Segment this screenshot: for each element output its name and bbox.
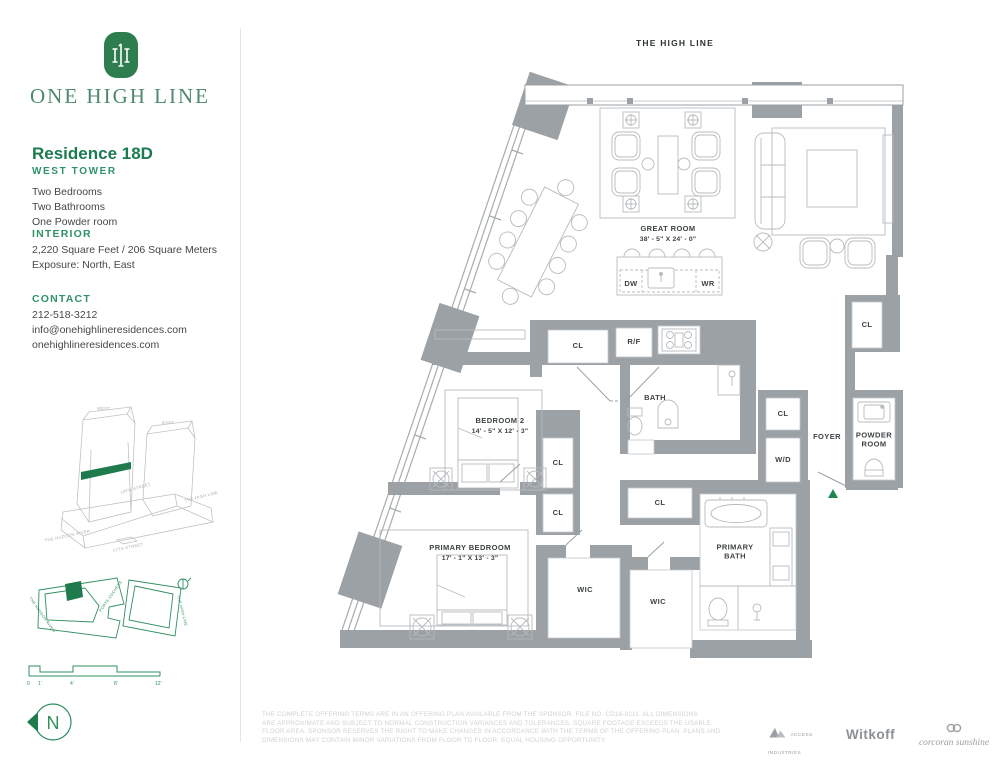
contact-email[interactable]: info@onehighlineresidences.com — [32, 323, 187, 338]
label-cl-foyer: CL — [778, 410, 789, 419]
label-primary-bath: PRIMARY BATH — [709, 544, 761, 561]
label-primary-bedroom: PRIMARY BEDROOM — [429, 544, 510, 553]
legal-disclaimer: THE COMPLETE OFFERING TERMS ARE IN AN OF… — [262, 711, 742, 745]
north-arrow: N — [26, 697, 76, 747]
residence-title: Residence 18D — [32, 144, 153, 164]
great-room-seating — [600, 108, 735, 218]
label-rf: R/F — [627, 338, 640, 347]
label-powder-room: POWDER ROOM — [850, 432, 898, 449]
label-wd: W/D — [775, 456, 791, 465]
label-cl-nook: CL — [862, 321, 873, 330]
feature-bedrooms: Two Bedrooms — [32, 185, 117, 200]
interior-heading: INTERIOR — [32, 228, 92, 240]
witkoff-logo: Witkoff — [846, 727, 908, 742]
bedroom2-furniture — [430, 390, 546, 490]
label-great-room: GREAT ROOM — [640, 225, 695, 234]
contact-heading: CONTACT — [32, 293, 91, 305]
label-wic-2: WIC — [650, 598, 666, 607]
east-tower-outline — [143, 428, 195, 516]
access-mountain-icon — [768, 725, 786, 739]
interior-details: 2,220 Square Feet / 206 Square Meters Ex… — [32, 243, 217, 273]
label-west: WEST — [97, 406, 110, 411]
scale-tick-0: 0 — [27, 681, 30, 687]
great-room-sofa-area — [754, 128, 893, 268]
site-map: THE HUDSON RIVER PORTE-COCHÈRE THE HIGH … — [25, 572, 200, 657]
brand-logo-badge — [104, 32, 138, 78]
scale-tick-8: 8' — [114, 681, 118, 687]
label-dw: DW — [624, 280, 637, 289]
interior-sqft: 2,220 Square Feet / 206 Square Meters — [32, 243, 217, 258]
label-bedroom2-dims: 14' - 5" X 12' - 3" — [472, 428, 529, 437]
label-18th-street: 18TH STREET — [120, 482, 152, 495]
north-arrow-pointer — [27, 712, 38, 732]
floor-plan — [280, 30, 990, 710]
residence-floor-band — [81, 462, 131, 480]
contact-phone[interactable]: 212-518-3212 — [32, 308, 187, 323]
north-label: N — [47, 713, 60, 733]
contact-website[interactable]: onehighlineresidences.com — [32, 338, 187, 353]
entry-triangle-marker — [828, 489, 838, 498]
scale-tick-12: 12' — [155, 681, 162, 687]
scale-tick-1: 1' — [38, 681, 42, 687]
label-bedroom2: BEDROOM 2 — [475, 417, 524, 426]
label-cl-hall-b: CL — [553, 509, 564, 518]
disclaimer-line-1: THE COMPLETE OFFERING TERMS ARE IN AN OF… — [262, 711, 742, 720]
building-axon-diagram: WEST EAST 18TH STREET THE HIGH LINE THE … — [25, 390, 220, 568]
residence-tower: WEST TOWER — [32, 166, 117, 177]
label-wic-1: WIC — [577, 586, 593, 595]
site-label-porte-cochere: PORTE-COCHÈRE — [98, 579, 124, 612]
scale-bar: 0 1' 4' 8' 12' — [25, 655, 170, 689]
disclaimer-line-4: DIMENSIONS MAY CONTAIN MINOR VARIATIONS … — [262, 737, 742, 746]
label-high-line: THE HIGH LINE — [184, 490, 219, 503]
label-cl-kitchen: CL — [573, 342, 584, 351]
unit-location-marker — [65, 581, 83, 601]
label-cl-primary: CL — [655, 499, 666, 508]
label-wr: WR — [701, 280, 714, 289]
site-label-hudson: THE HUDSON RIVER — [28, 596, 56, 633]
sidebar-divider — [240, 28, 241, 742]
label-foyer: FOYER — [813, 433, 841, 442]
label-east: EAST — [162, 420, 174, 425]
scale-tick-4: 4' — [70, 681, 74, 687]
north-window-wall — [525, 85, 903, 105]
brand-name: ONE HIGH LINE — [18, 84, 222, 109]
brochure-page: ONE HIGH LINE Residence 18D WEST TOWER T… — [0, 0, 1000, 771]
label-great-room-dims: 38' - 5" X 24' - 0" — [640, 236, 697, 245]
corcoran-rings-icon — [944, 723, 964, 733]
label-primary-bedroom-dims: 17' - 1" X 13' - 3" — [442, 555, 499, 564]
dining-table — [475, 164, 602, 320]
corcoran-sunshine-logo: corcoran sunshine — [918, 720, 990, 748]
interior-exposure: Exposure: North, East — [32, 258, 217, 273]
access-industries-logo: ACCESS INDUSTRIES — [768, 723, 838, 759]
brand-monogram-icon — [104, 32, 138, 78]
contact-details: 212-518-3212 info@onehighlineresidences.… — [32, 308, 187, 353]
corcoran-sunshine-label: corcoran sunshine — [918, 738, 990, 748]
east-lot-outline — [123, 580, 181, 636]
residence-features: Two Bedrooms Two Bathrooms One Powder ro… — [32, 185, 117, 230]
label-bath: BATH — [644, 394, 666, 403]
disclaimer-line-3: FLOOR AREA. SPONSOR RESERVES THE RIGHT T… — [262, 728, 742, 737]
disclaimer-line-2: ARE APPROXIMATE AND SUBJECT TO NORMAL CO… — [262, 720, 742, 729]
label-cl-hall-a: CL — [553, 459, 564, 468]
feature-bathrooms: Two Bathrooms — [32, 200, 117, 215]
